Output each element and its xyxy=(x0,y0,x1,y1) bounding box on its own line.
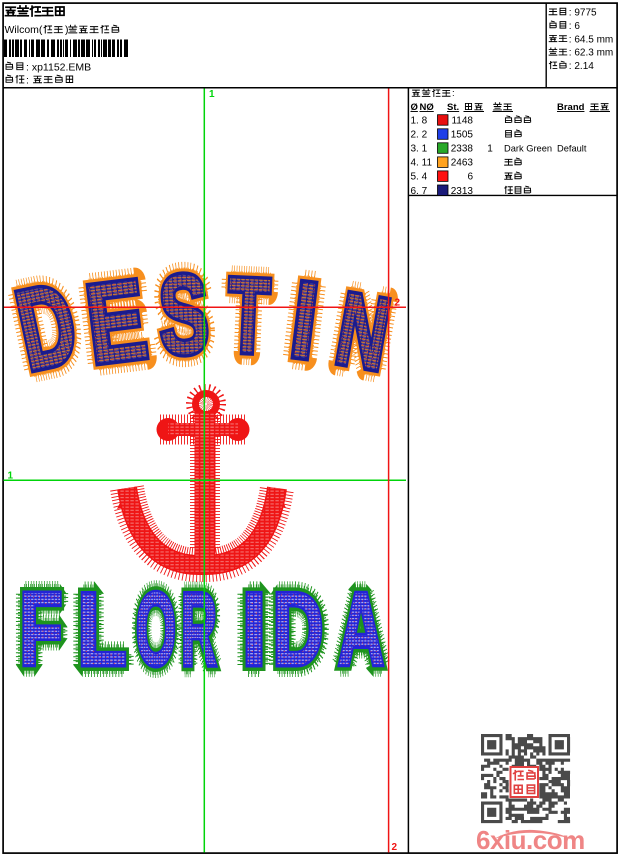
svg-text:): ) xyxy=(65,24,69,36)
svg-text:1148: 1148 xyxy=(451,116,473,127)
svg-text:3. 1: 3. 1 xyxy=(411,144,428,155)
svg-text:: 2.14: : 2.14 xyxy=(569,61,594,72)
svg-text:2: 2 xyxy=(392,842,398,853)
svg-text:F: F xyxy=(19,570,62,687)
svg-text:NØ: NØ xyxy=(420,102,434,113)
svg-text:Dark Green: Dark Green xyxy=(504,144,552,154)
svg-text:2463: 2463 xyxy=(451,158,474,169)
svg-text:T: T xyxy=(225,255,272,376)
svg-text:1: 1 xyxy=(8,471,14,482)
svg-text:R: R xyxy=(181,572,217,688)
svg-text:1. 8: 1. 8 xyxy=(411,116,428,127)
svg-text:Brand: Brand xyxy=(557,102,585,113)
svg-text:6. 7: 6. 7 xyxy=(411,186,428,197)
svg-text:1505: 1505 xyxy=(451,130,474,141)
svg-text:: 6: : 6 xyxy=(569,21,581,32)
svg-text:2. 2: 2. 2 xyxy=(411,130,428,141)
svg-text:2313: 2313 xyxy=(451,186,474,197)
svg-text:A: A xyxy=(338,572,385,687)
svg-text:: 64.5 mm: : 64.5 mm xyxy=(569,34,613,45)
svg-text:4. 11: 4. 11 xyxy=(411,158,433,169)
svg-text:L: L xyxy=(77,571,127,687)
svg-text:O: O xyxy=(136,573,176,688)
svg-text:: 9775: : 9775 xyxy=(569,8,597,19)
svg-text::: : xyxy=(26,75,29,87)
svg-text:6xiu.com: 6xiu.com xyxy=(476,825,585,855)
svg-text:1: 1 xyxy=(209,89,215,100)
svg-text:D: D xyxy=(272,570,323,687)
svg-text:5. 4: 5. 4 xyxy=(411,172,428,183)
svg-text:: 62.3 mm: : 62.3 mm xyxy=(569,48,613,59)
svg-text:Wilcom(: Wilcom( xyxy=(5,24,43,36)
svg-text:St.: St. xyxy=(447,102,459,113)
svg-text:1: 1 xyxy=(487,144,493,155)
svg-text:2338: 2338 xyxy=(451,144,474,155)
svg-text:Default: Default xyxy=(557,144,587,154)
svg-text:2: 2 xyxy=(395,298,401,309)
svg-text:6: 6 xyxy=(467,172,473,183)
svg-text:: xp1152.EMB: : xp1152.EMB xyxy=(26,62,91,74)
svg-text:Ø: Ø xyxy=(411,102,418,113)
svg-text:I: I xyxy=(242,572,267,687)
svg-text:S: S xyxy=(156,252,211,379)
svg-text::: : xyxy=(452,88,455,99)
